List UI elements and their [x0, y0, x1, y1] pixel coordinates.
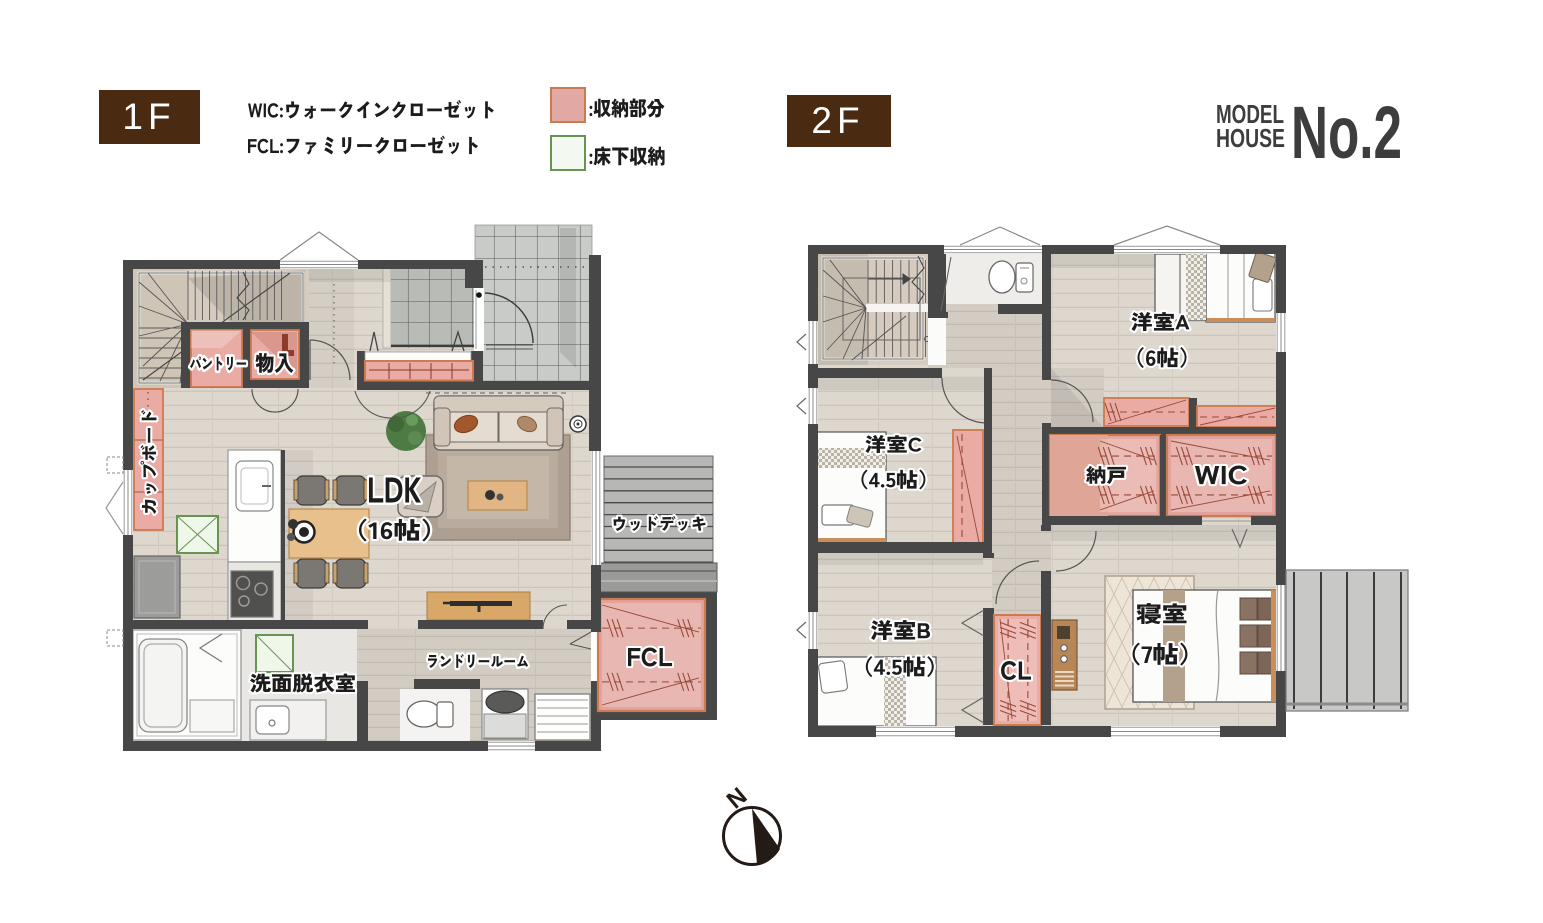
svg-text:1F: 1F: [122, 96, 175, 137]
svg-text:HOUSE: HOUSE: [1216, 123, 1285, 153]
svg-text:No.2: No.2: [1291, 91, 1402, 174]
svg-text:2F: 2F: [811, 100, 864, 141]
